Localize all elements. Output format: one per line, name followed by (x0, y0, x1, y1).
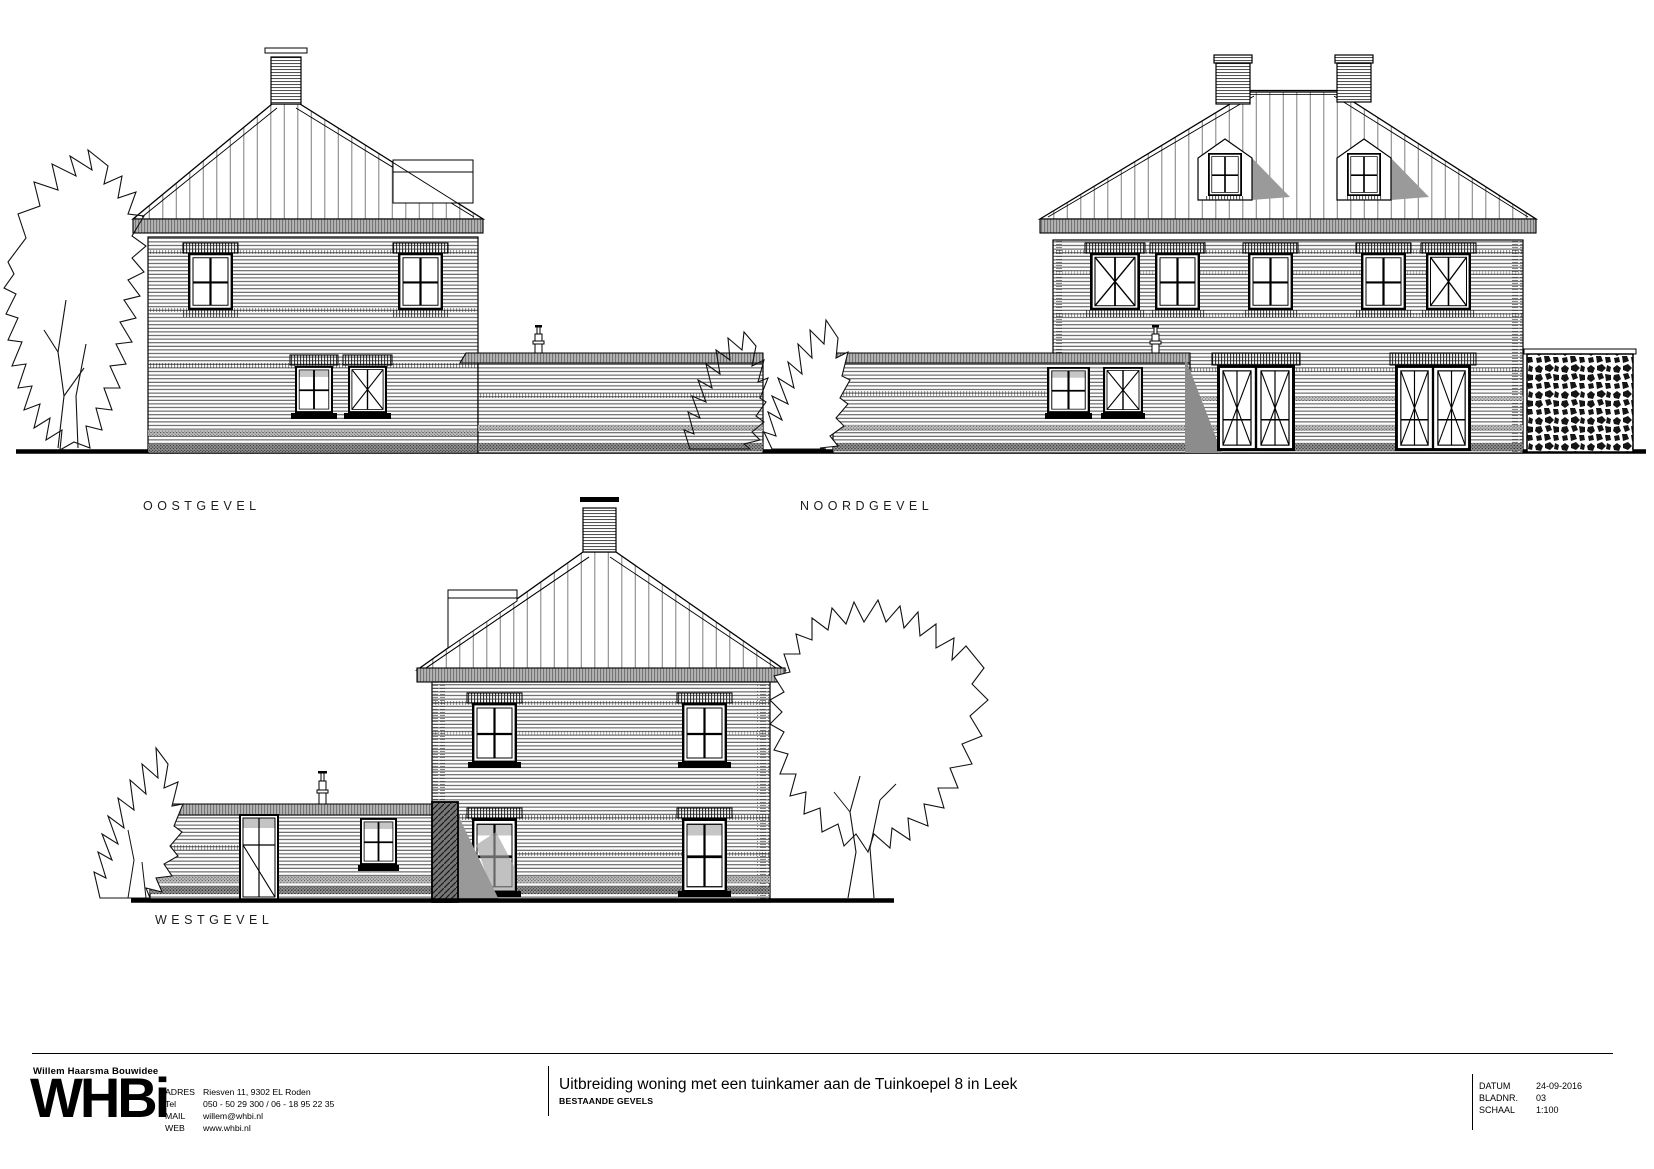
east-extension-vent (533, 325, 544, 353)
contact-row-mail: MAILwillem@whbi.nl (165, 1110, 334, 1122)
west-extension-window (358, 819, 399, 871)
west-chimney (580, 497, 619, 552)
east-elevation-label: OOSTGEVEL (143, 499, 261, 513)
adres-label: ADRES (165, 1086, 203, 1098)
west-roof (417, 551, 785, 671)
west-elevation: WESTGEVEL (94, 497, 988, 927)
schaal-label: SCHAAL (1479, 1104, 1536, 1116)
meta-row-datum: DATUM24-09-2016 (1479, 1080, 1582, 1092)
sheet-meta: DATUM24-09-2016 BLADNR.03 SCHAAL1:100 (1479, 1080, 1582, 1117)
east-elevation: OOSTGEVEL (4, 48, 768, 513)
east-extension (460, 325, 763, 453)
project-subtitle: BESTAANDE GEVELS (559, 1096, 653, 1106)
titleblock-divider-center (548, 1066, 549, 1116)
meta-row-schaal: SCHAAL1:100 (1479, 1104, 1582, 1116)
east-eaves (133, 219, 483, 233)
adres-value: Riesven 11, 9302 EL Roden (203, 1087, 311, 1097)
west-tree (770, 600, 988, 898)
tel-label: Tel (165, 1098, 203, 1110)
company-contact: ADRESRiesven 11, 9302 EL Roden Tel050 - … (165, 1086, 334, 1134)
west-extension-door (240, 815, 278, 900)
west-junction-strip (432, 802, 458, 902)
north-extension-window-left (1045, 368, 1092, 419)
schaal-value: 1:100 (1536, 1105, 1559, 1115)
north-extension-window-right (1101, 368, 1145, 419)
east-chimney (265, 48, 307, 104)
project-title: Uitbreiding woning met een tuinkamer aan… (559, 1076, 1017, 1094)
north-chimney-left (1214, 55, 1252, 104)
east-roof-terrace (393, 160, 473, 203)
mail-label: MAIL (165, 1110, 203, 1122)
drawing-sheet: OOSTGEVEL (0, 0, 1654, 1169)
titleblock-divider-right (1472, 1074, 1473, 1130)
west-elevation-label: WESTGEVEL (155, 913, 273, 927)
north-chimney-right (1335, 55, 1373, 102)
north-eaves (1040, 219, 1536, 233)
west-extension-vent (317, 771, 328, 804)
contact-row-adres: ADRESRiesven 11, 9302 EL Roden (165, 1086, 334, 1098)
web-label: WEB (165, 1122, 203, 1134)
west-window-upper-right (677, 693, 732, 768)
company-logo: WHBi (30, 1070, 167, 1126)
west-bush-left (94, 748, 183, 898)
contact-row-tel: Tel050 - 50 29 300 / 06 - 18 95 22 35 (165, 1098, 334, 1110)
north-roof (1040, 91, 1536, 220)
mail-value: willem@whbi.nl (203, 1111, 263, 1121)
west-window-upper-left (467, 693, 522, 768)
contact-row-web: WEBwww.whbi.nl (165, 1122, 334, 1134)
north-elevation-label: NOORDGEVEL (800, 499, 933, 513)
web-value: www.whbi.nl (203, 1123, 251, 1133)
west-extension (137, 771, 432, 902)
east-window-lower (290, 355, 338, 419)
east-tree (4, 150, 146, 450)
elevations-canvas: OOSTGEVEL (0, 0, 1654, 1169)
meta-row-bladnr: BLADNR.03 (1479, 1092, 1582, 1104)
titleblock-rule (32, 1053, 1613, 1054)
north-elevation: NOORDGEVEL (764, 55, 1636, 513)
north-extension-coping (825, 353, 1190, 363)
east-roof (133, 104, 483, 219)
east-door-lower (343, 355, 392, 419)
north-doors-right (1390, 353, 1476, 450)
west-window-lower-right (677, 808, 732, 897)
east-window-upper-left (183, 243, 238, 317)
north-doors-left (1212, 353, 1300, 450)
east-window-upper-right (393, 243, 448, 317)
datum-value: 24-09-2016 (1536, 1081, 1582, 1091)
tel-value: 050 - 50 29 300 / 06 - 18 95 22 35 (203, 1099, 334, 1109)
north-bush (764, 320, 850, 449)
west-eaves (417, 668, 785, 682)
bladnr-label: BLADNR. (1479, 1092, 1536, 1104)
west-corner-right (757, 682, 770, 902)
datum-label: DATUM (1479, 1080, 1536, 1092)
bladnr-value: 03 (1536, 1093, 1546, 1103)
north-stone-wall (1524, 349, 1636, 452)
